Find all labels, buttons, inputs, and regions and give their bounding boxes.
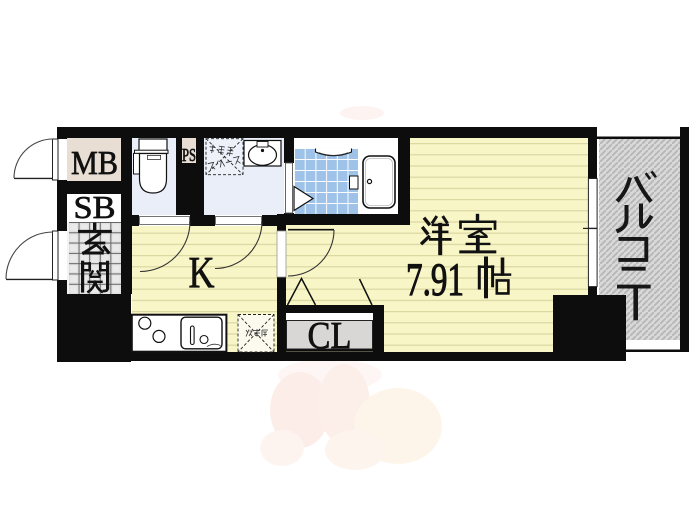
svg-text:PS: PS <box>182 145 196 165</box>
svg-text:SB: SB <box>74 189 116 225</box>
svg-text:K: K <box>189 248 215 297</box>
svg-text:CL: CL <box>308 315 352 357</box>
svg-text:MB: MB <box>71 145 118 182</box>
svg-text:7.91: 7.91 <box>406 254 464 306</box>
